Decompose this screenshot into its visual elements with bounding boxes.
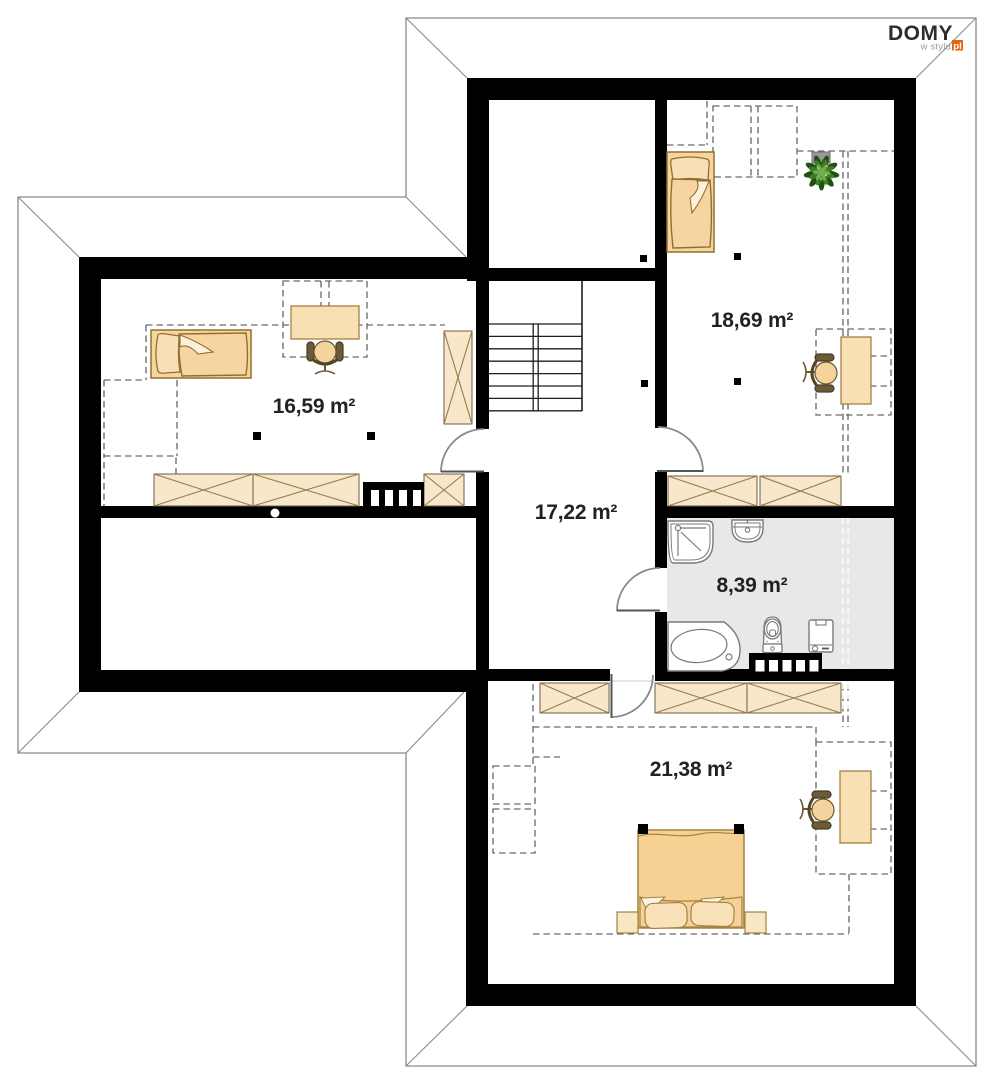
svg-text:8,39 m²: 8,39 m² — [717, 574, 788, 597]
svg-text:18,69 m²: 18,69 m² — [711, 309, 794, 332]
svg-text:21,38 m²: 21,38 m² — [650, 758, 733, 781]
svg-text:16,59 m²: 16,59 m² — [273, 395, 356, 418]
svg-text:17,22 m²: 17,22 m² — [535, 501, 618, 524]
svg-text:w stylu: w stylu — [920, 42, 951, 53]
svg-text:pl: pl — [953, 41, 961, 52]
